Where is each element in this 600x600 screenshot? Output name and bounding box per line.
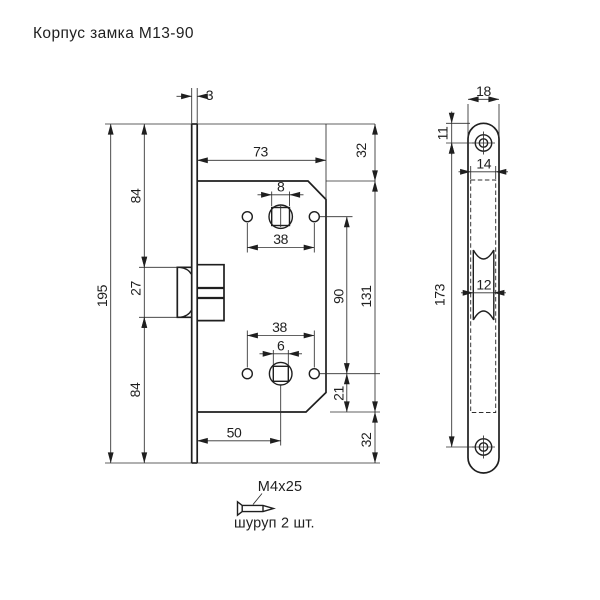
dim-screw-top-offset-label: 11 [435, 126, 451, 140]
dim-top-offset-label: 32 [353, 143, 369, 158]
dim-square-bottom-label: 6 [277, 338, 285, 354]
faceplate-view: 18 11 14 12 173 [432, 83, 509, 473]
dim-latch-slot-width-label: 12 [476, 276, 491, 292]
dim-centers-distance-label: 90 [330, 289, 346, 304]
leader-line [253, 494, 262, 505]
bottom-hub [242, 362, 319, 385]
top-hub [242, 205, 319, 228]
dim-hidden-body-width-label: 14 [476, 155, 491, 171]
dim-plate-thickness-label: 3 [206, 87, 214, 103]
screw-quantity-label: шуруп 2 шт. [234, 516, 315, 532]
dim-lower-height-label: 84 [127, 382, 143, 397]
main-view: 3 73 32 84 8 38 27 195 90 131 38 6 21 84… [94, 87, 380, 463]
dim-plate-width-label: 18 [476, 83, 491, 99]
technical-drawing: Корпус замка М13-90 [0, 0, 600, 600]
drawing-page: Корпус замка М13-90 [0, 0, 600, 600]
hidden-body-dashed [471, 180, 496, 413]
dim-screw-centers-label: 173 [432, 283, 448, 306]
dim-total-height-label: 195 [94, 284, 110, 307]
screw-size-label: М4х25 [258, 479, 303, 495]
latch-housing [197, 265, 224, 321]
dim-body-width-label: 73 [253, 144, 268, 160]
dimension-lines-main [111, 96, 375, 463]
dim-bottom-offset-label: 32 [358, 432, 374, 447]
drawing-title: Корпус замка М13-90 [33, 25, 194, 42]
dim-upper-height-label: 84 [128, 188, 144, 203]
screw-legend: М4х25 шуруп 2 шт. [234, 479, 315, 532]
dim-holes-span-bottom-label: 38 [272, 319, 287, 335]
faceplate-side [192, 88, 198, 463]
screw-icon [238, 502, 274, 515]
dim-backset-label: 50 [227, 424, 242, 440]
dim-square-top-label: 8 [277, 179, 285, 195]
lock-body-outline [197, 181, 326, 412]
dim-body-height-label: 131 [358, 285, 374, 308]
dim-latch-height-label: 27 [128, 281, 144, 296]
dimension-labels-faceplate: 18 11 14 12 173 [432, 83, 492, 306]
dim-lower-offset-label: 21 [330, 386, 346, 401]
dim-holes-span-top-label: 38 [273, 231, 288, 247]
latch-bolt [177, 267, 191, 317]
dimension-labels-main: 3 73 32 84 8 38 27 195 90 131 38 6 21 84… [94, 87, 374, 447]
